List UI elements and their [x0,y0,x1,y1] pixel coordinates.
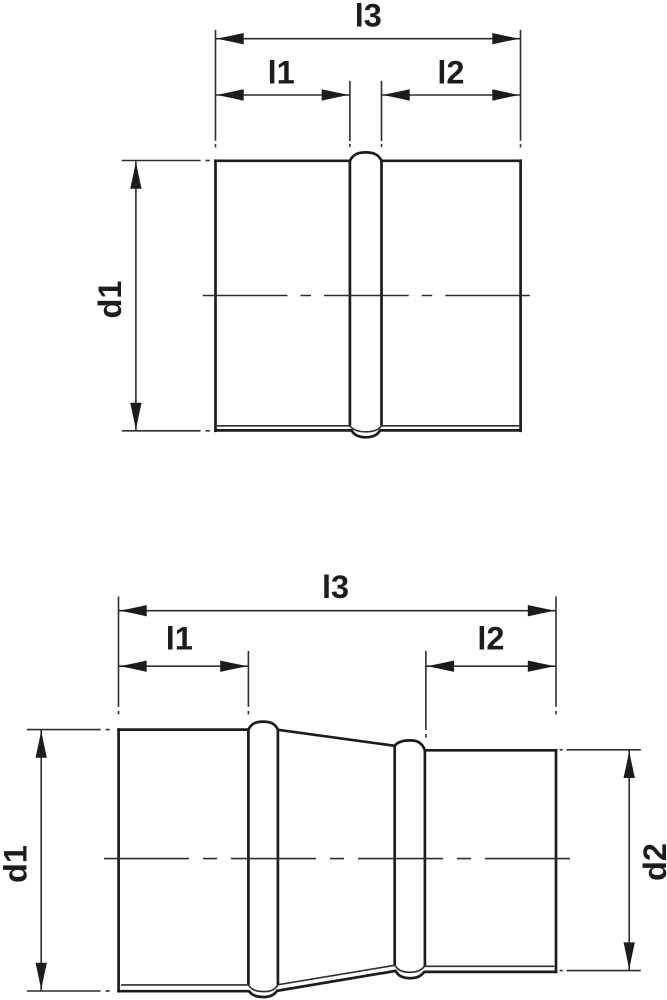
svg-text:l2: l2 [437,54,464,90]
svg-text:l1: l1 [166,621,193,657]
svg-text:l1: l1 [268,54,295,90]
svg-text:l2: l2 [477,621,504,657]
svg-text:l3: l3 [322,569,349,605]
svg-text:l3: l3 [355,0,382,33]
svg-text:d2: d2 [637,843,667,881]
svg-text:d1: d1 [92,281,128,319]
svg-text:d1: d1 [0,845,34,883]
